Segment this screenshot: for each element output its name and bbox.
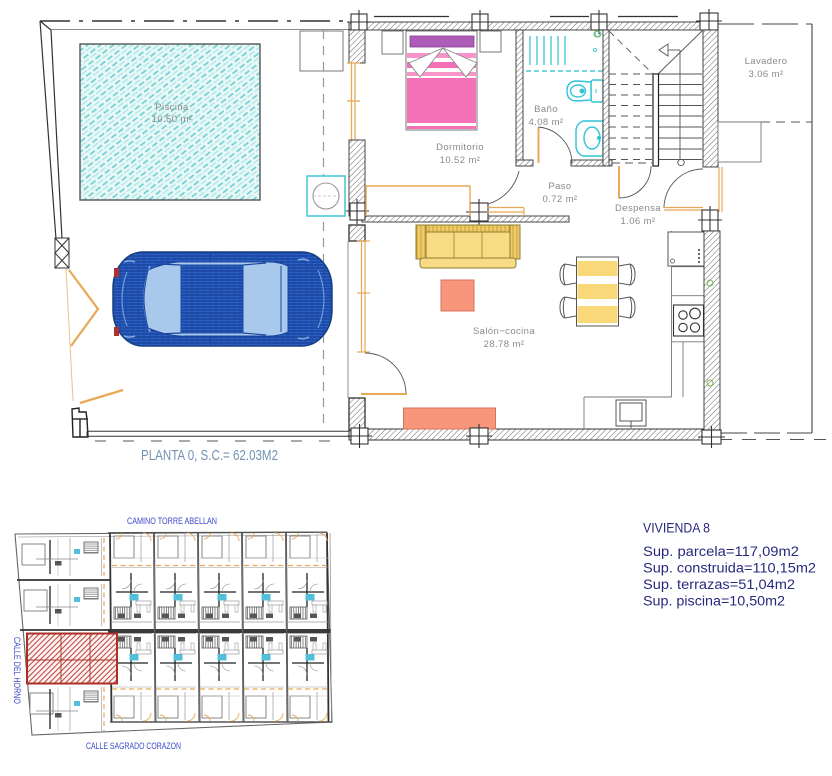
svg-text:CALLE DEL HORNO: CALLE DEL HORNO xyxy=(12,637,22,704)
svg-text:PLANTA 0, S.C.= 62.03M2: PLANTA 0, S.C.= 62.03M2 xyxy=(141,448,278,464)
svg-text:Baño: Baño xyxy=(534,104,558,115)
svg-text:Sup. terrazas=51,04m2: Sup. terrazas=51,04m2 xyxy=(643,577,795,592)
svg-text:28.78 m²: 28.78 m² xyxy=(484,339,525,350)
svg-text:Salón−cocina: Salón−cocina xyxy=(473,326,535,337)
svg-text:3.06 m²: 3.06 m² xyxy=(748,69,783,80)
svg-text:Sup. parcela=117,09m2: Sup. parcela=117,09m2 xyxy=(643,544,799,559)
svg-text:Lavadero: Lavadero xyxy=(745,56,788,67)
svg-text:Dormitorio: Dormitorio xyxy=(436,142,484,153)
svg-text:Sup. piscina=10,50m2: Sup. piscina=10,50m2 xyxy=(643,594,785,609)
svg-text:Sup. construida=110,15m2: Sup. construida=110,15m2 xyxy=(643,561,816,576)
svg-text:VIVIENDA 8: VIVIENDA 8 xyxy=(643,521,710,536)
svg-text:Piscina: Piscina xyxy=(155,102,189,113)
svg-text:4.08 m²: 4.08 m² xyxy=(528,117,563,128)
svg-text:10.50 m²: 10.50 m² xyxy=(152,114,193,125)
svg-text:CAMINO TORRE ABELLAN: CAMINO TORRE ABELLAN xyxy=(127,516,217,526)
svg-text:10.52 m²: 10.52 m² xyxy=(440,155,481,166)
svg-text:0.72 m²: 0.72 m² xyxy=(542,194,577,205)
svg-text:1.06 m²: 1.06 m² xyxy=(620,216,655,227)
svg-text:Despensa: Despensa xyxy=(615,203,661,214)
svg-text:Paso: Paso xyxy=(548,181,571,192)
svg-text:CALLE SAGRADO CORAZON: CALLE SAGRADO CORAZON xyxy=(86,741,181,751)
